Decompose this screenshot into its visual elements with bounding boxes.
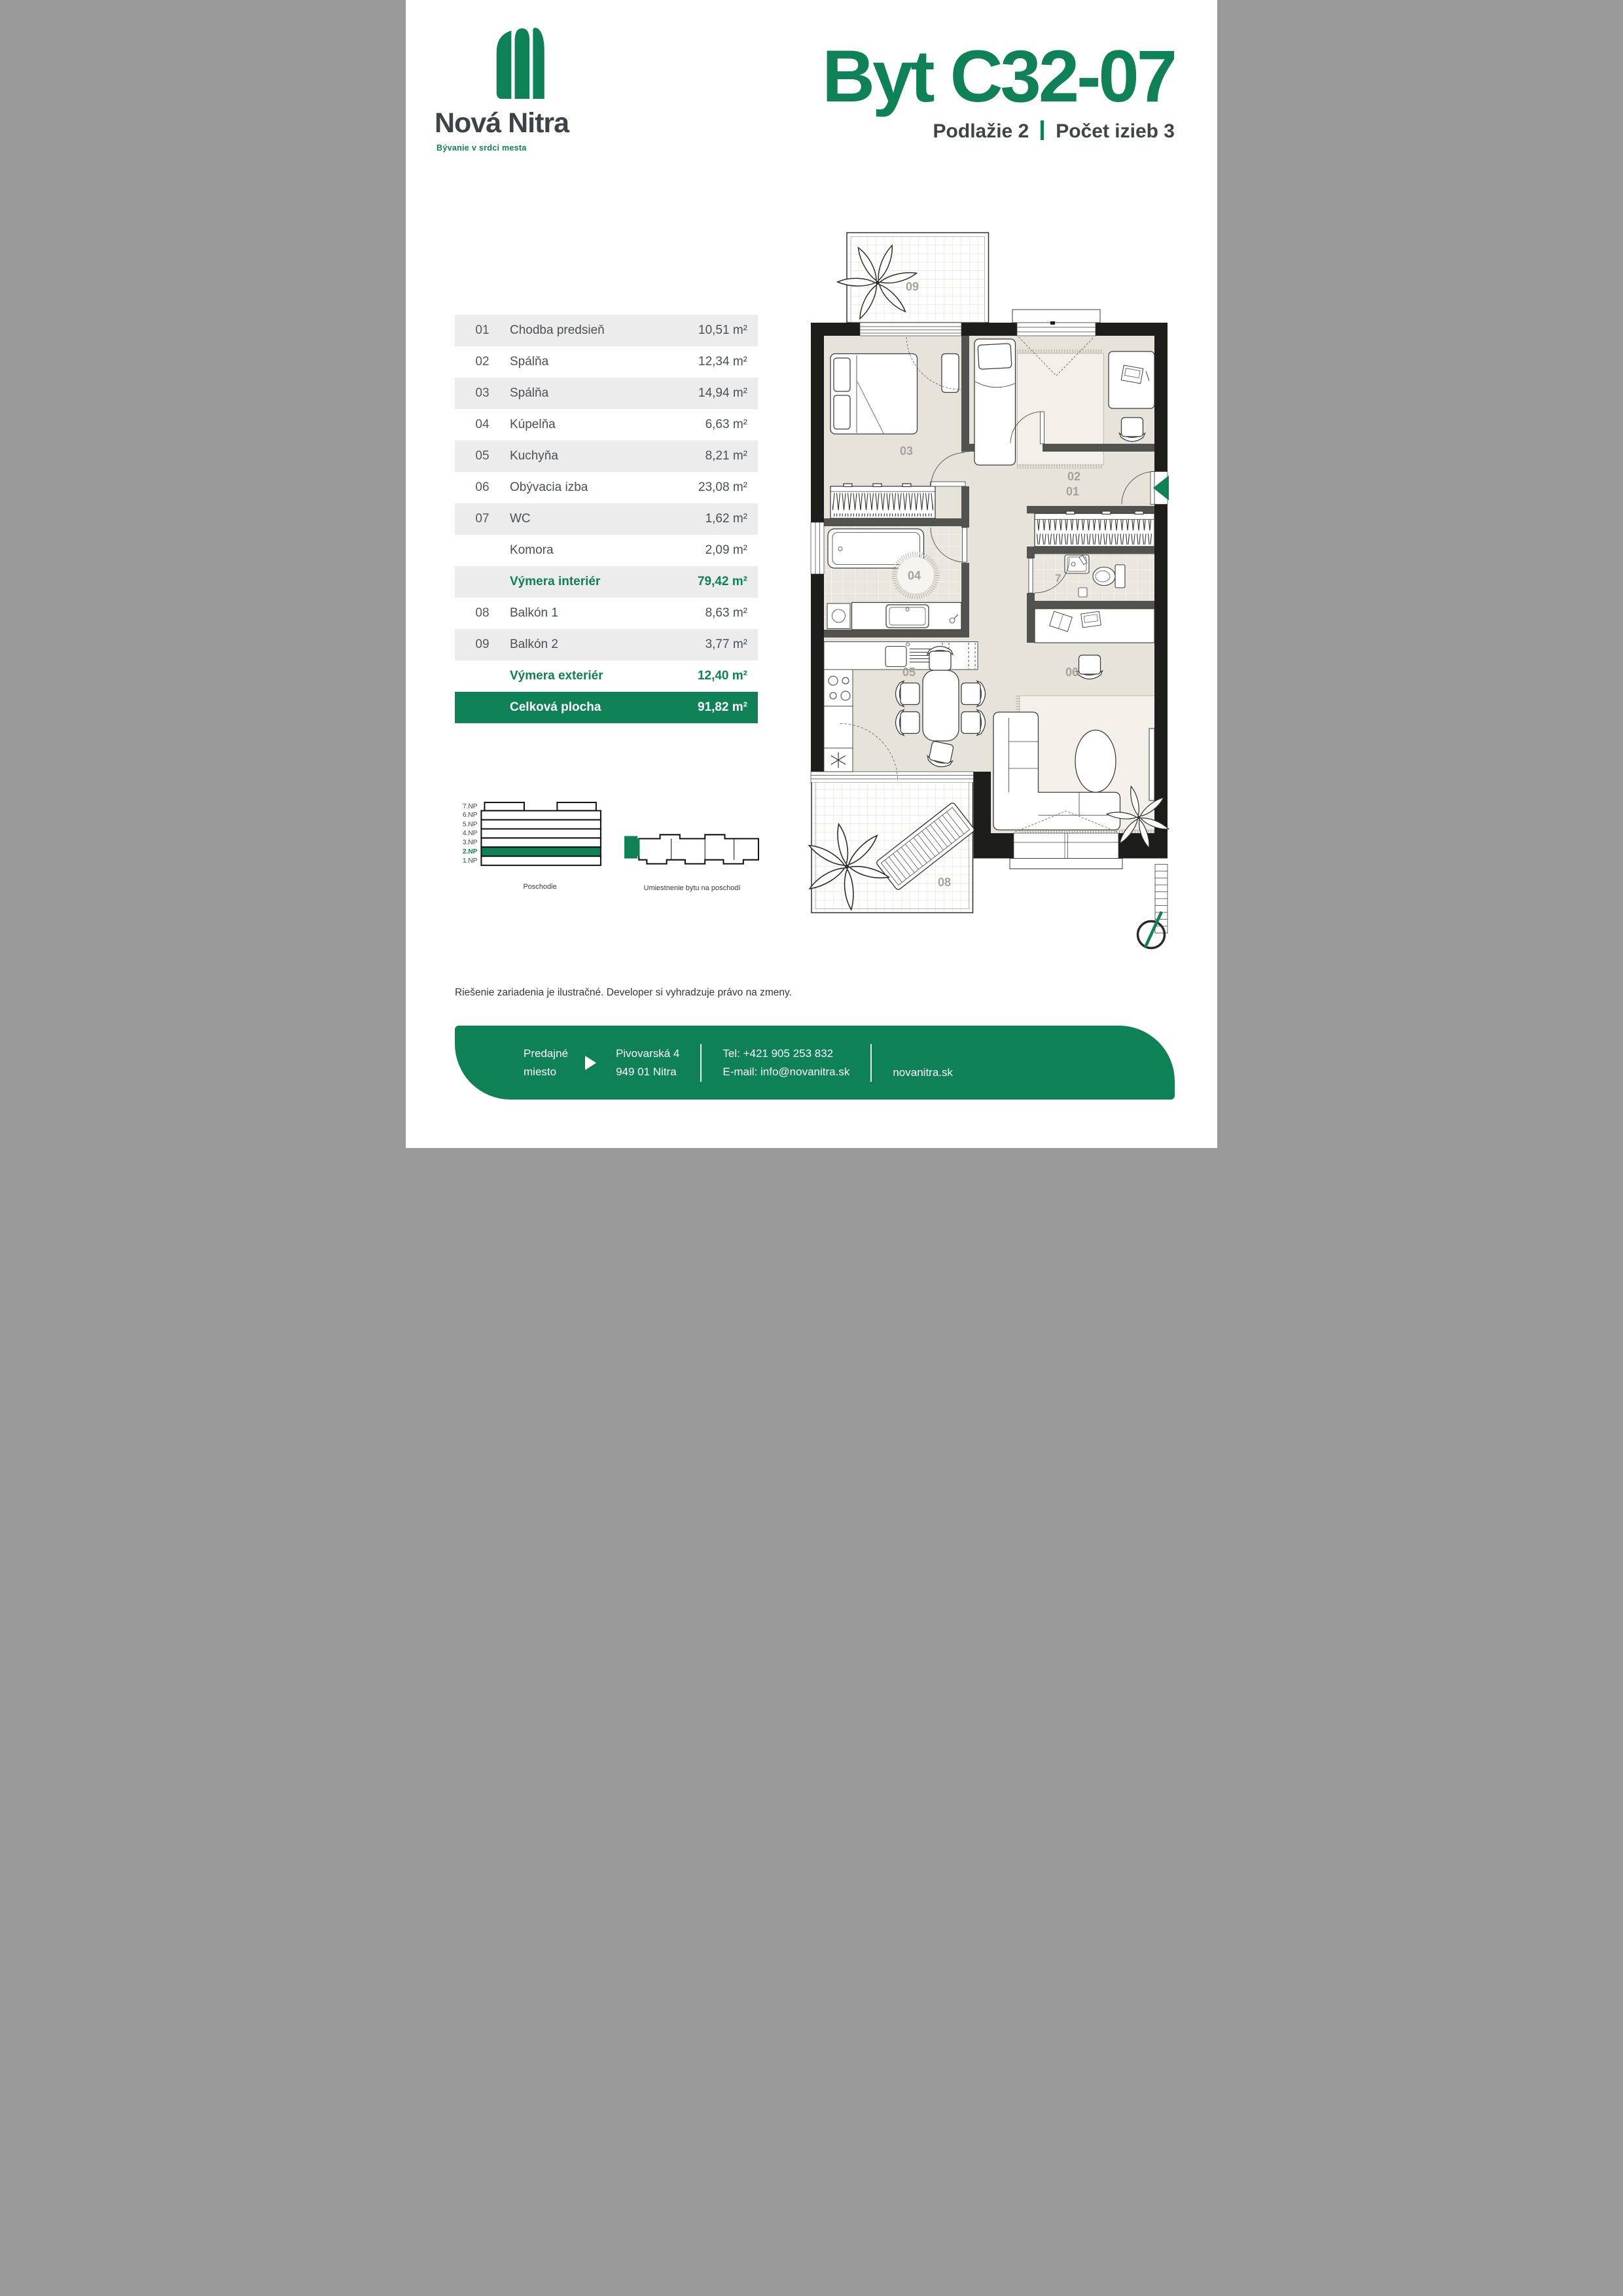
table-row: 05Kuchyňa8,21 m²: [455, 440, 758, 472]
table-row: 08Balkón 18,63 m²: [455, 598, 758, 629]
subtitle-divider: [1041, 120, 1044, 140]
footer-bar: Predajné miesto Pivovarská 4 949 01 Nitr…: [455, 1026, 1175, 1100]
floor-label: 4.NP: [463, 830, 478, 837]
floor-label: Podlažie 2: [933, 120, 1029, 142]
room-label: 08: [938, 876, 951, 889]
disclaimer-text: Riešenie zariadenia je ilustračné. Devel…: [455, 987, 792, 999]
storage-nook: [1035, 609, 1154, 643]
page: Nová Nitra Bývanie v srdci mesta Byt C32…: [406, 0, 1217, 1148]
floor-label: 3.NP: [463, 839, 478, 846]
floor-label-active: 2.NP: [463, 848, 478, 855]
unit-location-caption: Umiestnenie bytu na poschodí: [622, 884, 762, 892]
room-label: 03: [900, 444, 913, 457]
brand-name: Nová Nitra: [435, 107, 569, 139]
floors-caption: Poschodie: [474, 883, 605, 891]
table-row: 07WC1,62 m²: [455, 503, 758, 535]
table-row-exterior-total: Výmera exteriér12,40 m²: [455, 660, 758, 692]
apartment-title: Byt C32-07: [822, 34, 1175, 118]
floor-label: 5.NP: [463, 821, 478, 828]
room-label: 09: [906, 280, 919, 293]
floor-label: 6.NP: [463, 812, 478, 819]
website: novanitra.sk: [893, 1044, 953, 1081]
brand-tagline: Bývanie v srdci mesta: [437, 143, 527, 152]
room-label: 04: [908, 569, 921, 583]
apartment-subtitle: Podlažie 2Počet izieb 3: [933, 120, 1175, 143]
arrow-right-icon: [585, 1056, 596, 1070]
table-row: 09Balkón 23,77 m²: [455, 629, 758, 660]
balcony-08: 08: [807, 783, 975, 918]
table-row: Komora2,09 m²: [455, 535, 758, 566]
room-label: 02: [1067, 470, 1080, 483]
floor-plan: 09: [807, 228, 1171, 957]
room-label: 01: [1066, 485, 1079, 498]
footer-divider: [700, 1044, 702, 1082]
room-area-table: 01Chodba predsieň10,51 m² 02Spálňa12,34 …: [455, 315, 758, 723]
floor-label: 1.NP: [463, 857, 478, 865]
sales-point-label: Predajné miesto: [524, 1045, 568, 1080]
rooms-count-label: Počet izieb 3: [1056, 120, 1175, 142]
hall-wardrobe: [1035, 511, 1154, 547]
footer-divider: [870, 1044, 872, 1082]
unit-location-diagram: [622, 827, 760, 867]
room-label: 05: [902, 666, 916, 679]
nova-nitra-logo-icon: [489, 25, 550, 99]
footer-contacts: Tel: +421 905 253 832 E-mail: info@novan…: [722, 1045, 849, 1080]
floor-label: 7.NP: [463, 803, 478, 810]
room-label: 7: [1055, 572, 1061, 584]
table-row: 04Kúpelňa6,63 m²: [455, 409, 758, 440]
table-row-grand-total: Celková plocha91,82 m²: [455, 692, 758, 723]
sales-address: Pivovarská 4 949 01 Nitra: [616, 1045, 679, 1080]
table-row: 06Obývacia izba23,08 m²: [455, 472, 758, 503]
floor-selector-diagram: 7.NP 6.NP 5.NP 4.NP 3.NP 2.NP 1.NP: [452, 800, 603, 879]
table-row: 03Spálňa14,94 m²: [455, 378, 758, 409]
table-row: 01Chodba predsieň10,51 m²: [455, 315, 758, 346]
phone: Tel: +421 905 253 832: [722, 1045, 849, 1062]
balcony-09: 09: [827, 232, 989, 333]
highlighted-unit: [624, 836, 639, 858]
table-row: 02Spálňa12,34 m²: [455, 346, 758, 378]
room-label: 06: [1065, 666, 1079, 679]
email: E-mail: info@novanitra.sk: [722, 1063, 849, 1081]
table-row-interior-total: Výmera interiér79,42 m²: [455, 566, 758, 598]
